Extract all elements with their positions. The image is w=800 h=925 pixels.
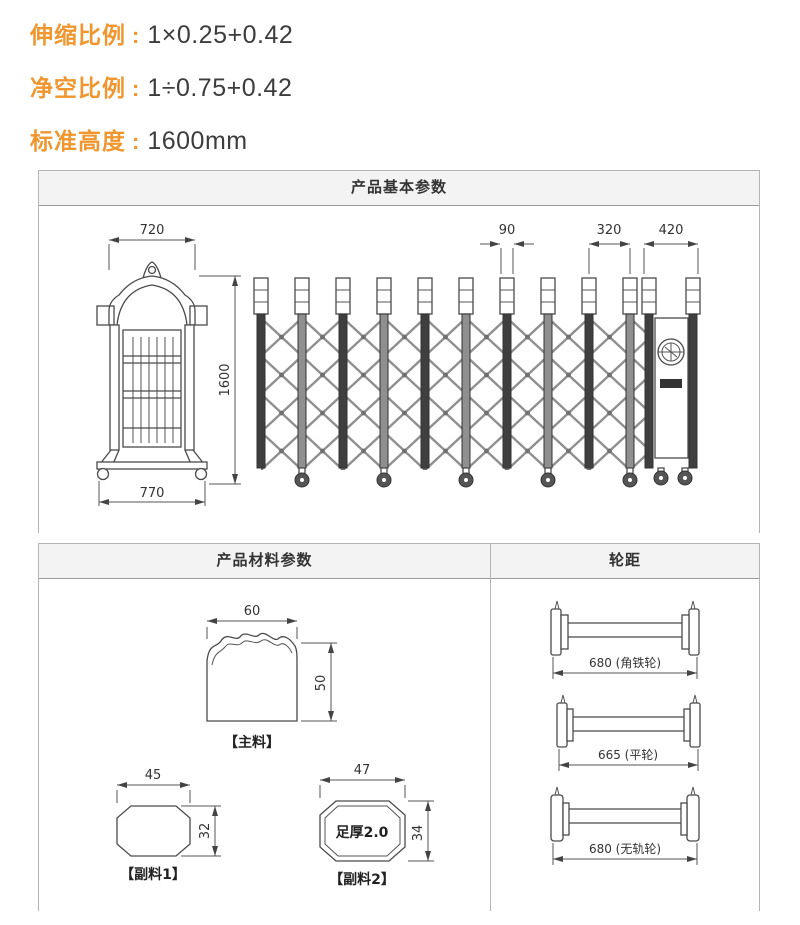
panel-basic-header: 产品基本参数 [39, 171, 759, 206]
dim-1600-text: 1600 [218, 363, 233, 396]
dim-320-text: 320 [597, 223, 622, 238]
dim-90-text: 90 [499, 223, 516, 238]
dim-50-text: 50 [314, 675, 329, 692]
spec-colon: : [132, 23, 139, 49]
spec-label: 标准高度 [30, 122, 126, 156]
panel-bottom: 产品材料参数 [38, 543, 760, 911]
spec-row-standard-height: 标准高度 : 1600mm [30, 122, 293, 156]
panel-material-body: 60 50 【主料】 45 32 [39, 579, 490, 911]
gate-wheels [295, 468, 637, 487]
dim-45-text: 45 [145, 768, 162, 783]
main-profile-label: 【主料】 [224, 734, 280, 751]
dim-unit-pitch: 320 [589, 223, 630, 274]
dim-420-text: 420 [659, 223, 684, 238]
wheel-track-3-text: 680 (无轨轮) [589, 842, 661, 856]
wheel-axle-trackless: 680 (无轨轮) [551, 787, 699, 865]
sub-profile-2-section: 足厚2.0 47 34 【副料2】 [320, 763, 434, 888]
wheel-track-1-text: 680 (角铁轮) [589, 656, 661, 670]
panel-material-params: 产品材料参数 [39, 544, 491, 910]
spec-value: 1×0.25+0.42 [147, 21, 293, 50]
gate-technical-drawing: 720 1600 770 [39, 206, 759, 533]
panel-basic-params: 产品基本参数 [38, 170, 760, 533]
panel-basic-body: 720 1600 770 [39, 206, 759, 533]
spec-value: 1÷0.75+0.42 [147, 74, 292, 103]
sub-profile-2-label: 【副料2】 [329, 871, 395, 888]
sub-profile-1-section: 45 32 【副料1】 [117, 768, 221, 883]
material-profiles-drawing: 60 50 【主料】 45 32 [39, 579, 489, 911]
dim-32-text: 32 [198, 823, 213, 840]
spec-label: 伸缩比例 [30, 16, 126, 50]
spec-colon: : [132, 129, 139, 155]
product-spec-page: 伸缩比例 : 1×0.25+0.42 净空比例 : 1÷0.75+0.42 标准… [0, 0, 800, 925]
spec-row-clearance-ratio: 净空比例 : 1÷0.75+0.42 [30, 69, 293, 103]
dim-post-base-width: 770 [99, 481, 205, 506]
spec-value: 1600mm [147, 127, 247, 156]
dim-post-top-width: 720 [109, 223, 195, 270]
sub-profile-1-label: 【副料1】 [120, 866, 186, 883]
dim-drive-unit-width: 420 [644, 223, 698, 274]
wheel-track-2-text: 665 (平轮) [598, 748, 658, 762]
dim-720-text: 720 [140, 223, 165, 238]
dim-47-text: 47 [354, 763, 371, 778]
wheel-axle-angle-iron: 680 (角铁轮) [551, 601, 699, 679]
dim-60-text: 60 [244, 604, 261, 619]
panel-material-header: 产品材料参数 [39, 544, 490, 579]
spec-list: 伸缩比例 : 1×0.25+0.42 净空比例 : 1÷0.75+0.42 标准… [30, 16, 293, 175]
panel-wheel-body: 680 (角铁轮) 665 (平轮) [491, 579, 759, 911]
gate-post-front-view [97, 262, 207, 480]
gate-drive-unit [642, 278, 700, 485]
panel-wheel-track: 轮距 [491, 544, 759, 910]
brand-emblem [658, 339, 684, 365]
panel-basic-title: 产品基本参数 [351, 179, 447, 196]
panel-wheel-title: 轮距 [609, 552, 641, 569]
dim-34-text: 34 [411, 825, 426, 842]
spec-row-extension-ratio: 伸缩比例 : 1×0.25+0.42 [30, 16, 293, 50]
dim-770-text: 770 [140, 486, 165, 501]
panel-material-title: 产品材料参数 [216, 552, 312, 569]
main-profile-section: 60 50 【主料】 [207, 604, 337, 751]
wheel-axle-flat: 665 (平轮) [557, 695, 700, 771]
wheel-track-drawing: 680 (角铁轮) 665 (平轮) [491, 579, 759, 911]
gate-side-view [254, 278, 700, 487]
unit-label-plate [660, 379, 682, 388]
spec-colon: : [132, 76, 139, 102]
spec-label: 净空比例 [30, 69, 126, 103]
dim-rail-pitch-small: 90 [480, 223, 534, 274]
panel-wheel-header: 轮距 [491, 544, 759, 579]
wall-thickness-note: 足厚2.0 [336, 825, 389, 841]
